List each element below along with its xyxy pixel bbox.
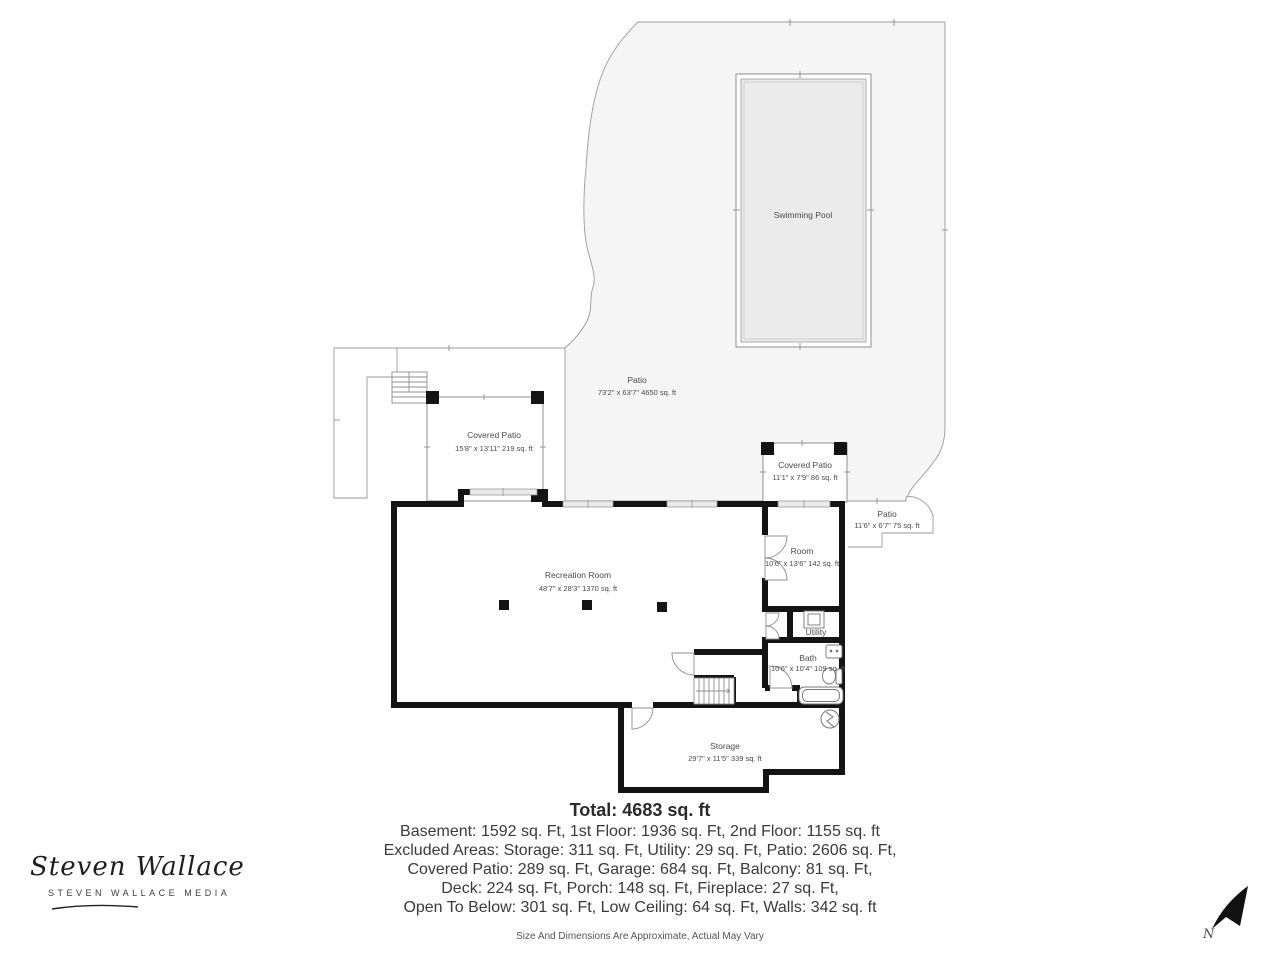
swimming-pool-label: Swimming Pool — [774, 210, 833, 220]
total-area: Total: 4683 sq. ft — [0, 800, 1280, 820]
storage-dims: 29'7" x 11'5" 339 sq. ft — [688, 754, 762, 763]
interior-walls — [621, 504, 842, 705]
logo-script-text: Steven Wallace — [30, 852, 250, 882]
bathtub — [799, 687, 843, 704]
patio-post — [761, 442, 774, 455]
outdoor-stairs — [392, 372, 427, 403]
bath-sink — [826, 645, 842, 658]
patio-post — [426, 391, 439, 404]
interior-stairs — [694, 678, 734, 704]
patio-post — [531, 391, 544, 404]
recreation-room-dims: 48'7" x 28'3" 1370 sq. ft — [539, 584, 618, 593]
sump-pump-symbol — [821, 710, 839, 728]
utility-water-heater — [804, 611, 824, 628]
window — [470, 488, 537, 496]
room-dims: 10'6" x 13'6" 142 sq. ft — [765, 559, 840, 568]
covered-patio-left-label: Covered Patio — [467, 430, 521, 440]
covered-patio-right — [761, 442, 847, 502]
north-label: N — [1202, 927, 1215, 942]
north-arrow-icon — [1212, 886, 1248, 929]
window — [667, 500, 717, 508]
patio-main-dims: 73'2" x 63'7" 4650 sq. ft — [598, 388, 677, 397]
room-label: Room — [791, 546, 814, 556]
bath-label: Bath — [799, 653, 817, 663]
window — [778, 500, 830, 508]
summary-line-floors: Basement: 1592 sq. Ft, 1st Floor: 1936 s… — [0, 822, 1280, 841]
logo-swoosh — [50, 903, 140, 911]
covered-patio-right-label: Covered Patio — [778, 460, 832, 470]
room-door-leaf — [765, 536, 787, 558]
patio-right-label: Patio — [877, 509, 897, 519]
support-posts — [499, 600, 667, 612]
window — [563, 500, 613, 508]
patio-post — [834, 442, 847, 455]
recreation-room-label: Recreation Room — [545, 570, 611, 580]
disclaimer-text: Size And Dimensions Are Approximate, Act… — [0, 931, 1280, 942]
hall-door-leaf — [672, 653, 694, 675]
bath-dims: 10'6" x 10'4" 109 sq. ft — [771, 664, 846, 673]
covered-patio-left-dims: 15'8" x 13'11" 219 sq. ft — [455, 444, 534, 453]
storage-door-leaf — [632, 708, 653, 729]
closet-door-leaf — [766, 613, 779, 626]
floorplan-page: Swimming Pool Patio 73'2" x 63'7" 4650 s… — [0, 0, 1280, 960]
closet-door-leaf — [766, 626, 779, 639]
utility-label: Utility — [806, 627, 828, 637]
storage-label: Storage — [710, 741, 740, 751]
patio-main-label: Patio — [627, 375, 647, 385]
north-arrow: N — [1185, 868, 1280, 953]
covered-patio-right-dims: 11'1" x 7'9" 86 sq. ft — [772, 473, 838, 482]
patio-right-dims: 11'6" x 6'7" 75 sq. ft — [854, 521, 920, 530]
brand-logo: Steven Wallace STEVEN WALLACE MEDIA — [30, 852, 250, 916]
logo-subtitle-text: STEVEN WALLACE MEDIA — [48, 888, 250, 898]
